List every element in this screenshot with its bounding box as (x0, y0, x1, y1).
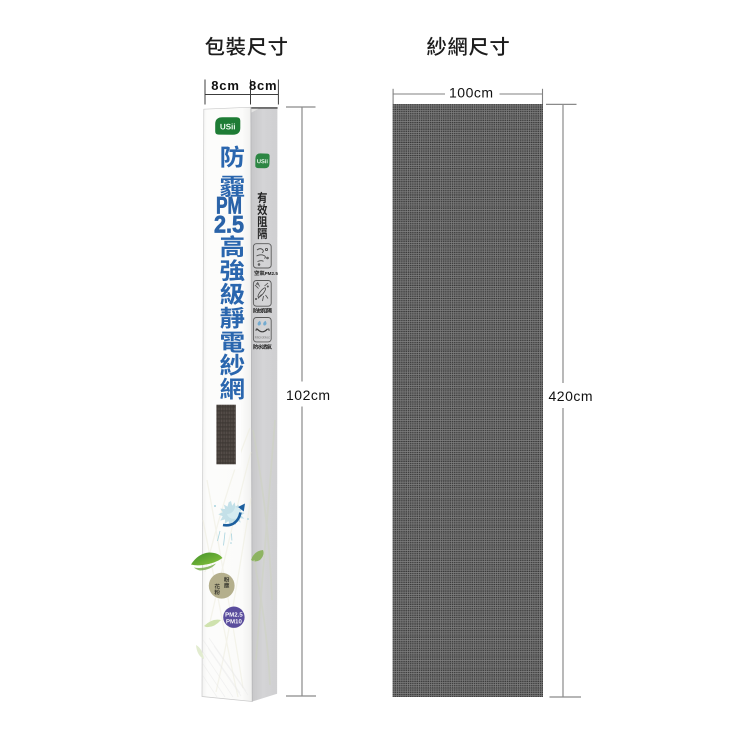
svg-text:8cm: 8cm (211, 78, 239, 93)
svg-text:8cm: 8cm (249, 78, 277, 93)
svg-text:2.5: 2.5 (214, 211, 244, 238)
svg-text:PM2.5: PM2.5 (265, 271, 279, 276)
svg-text:420cm: 420cm (549, 388, 594, 404)
svg-text:Microbloc: Microbloc (255, 336, 271, 340)
svg-text:102cm: 102cm (286, 387, 331, 403)
svg-text:100cm: 100cm (449, 85, 494, 101)
